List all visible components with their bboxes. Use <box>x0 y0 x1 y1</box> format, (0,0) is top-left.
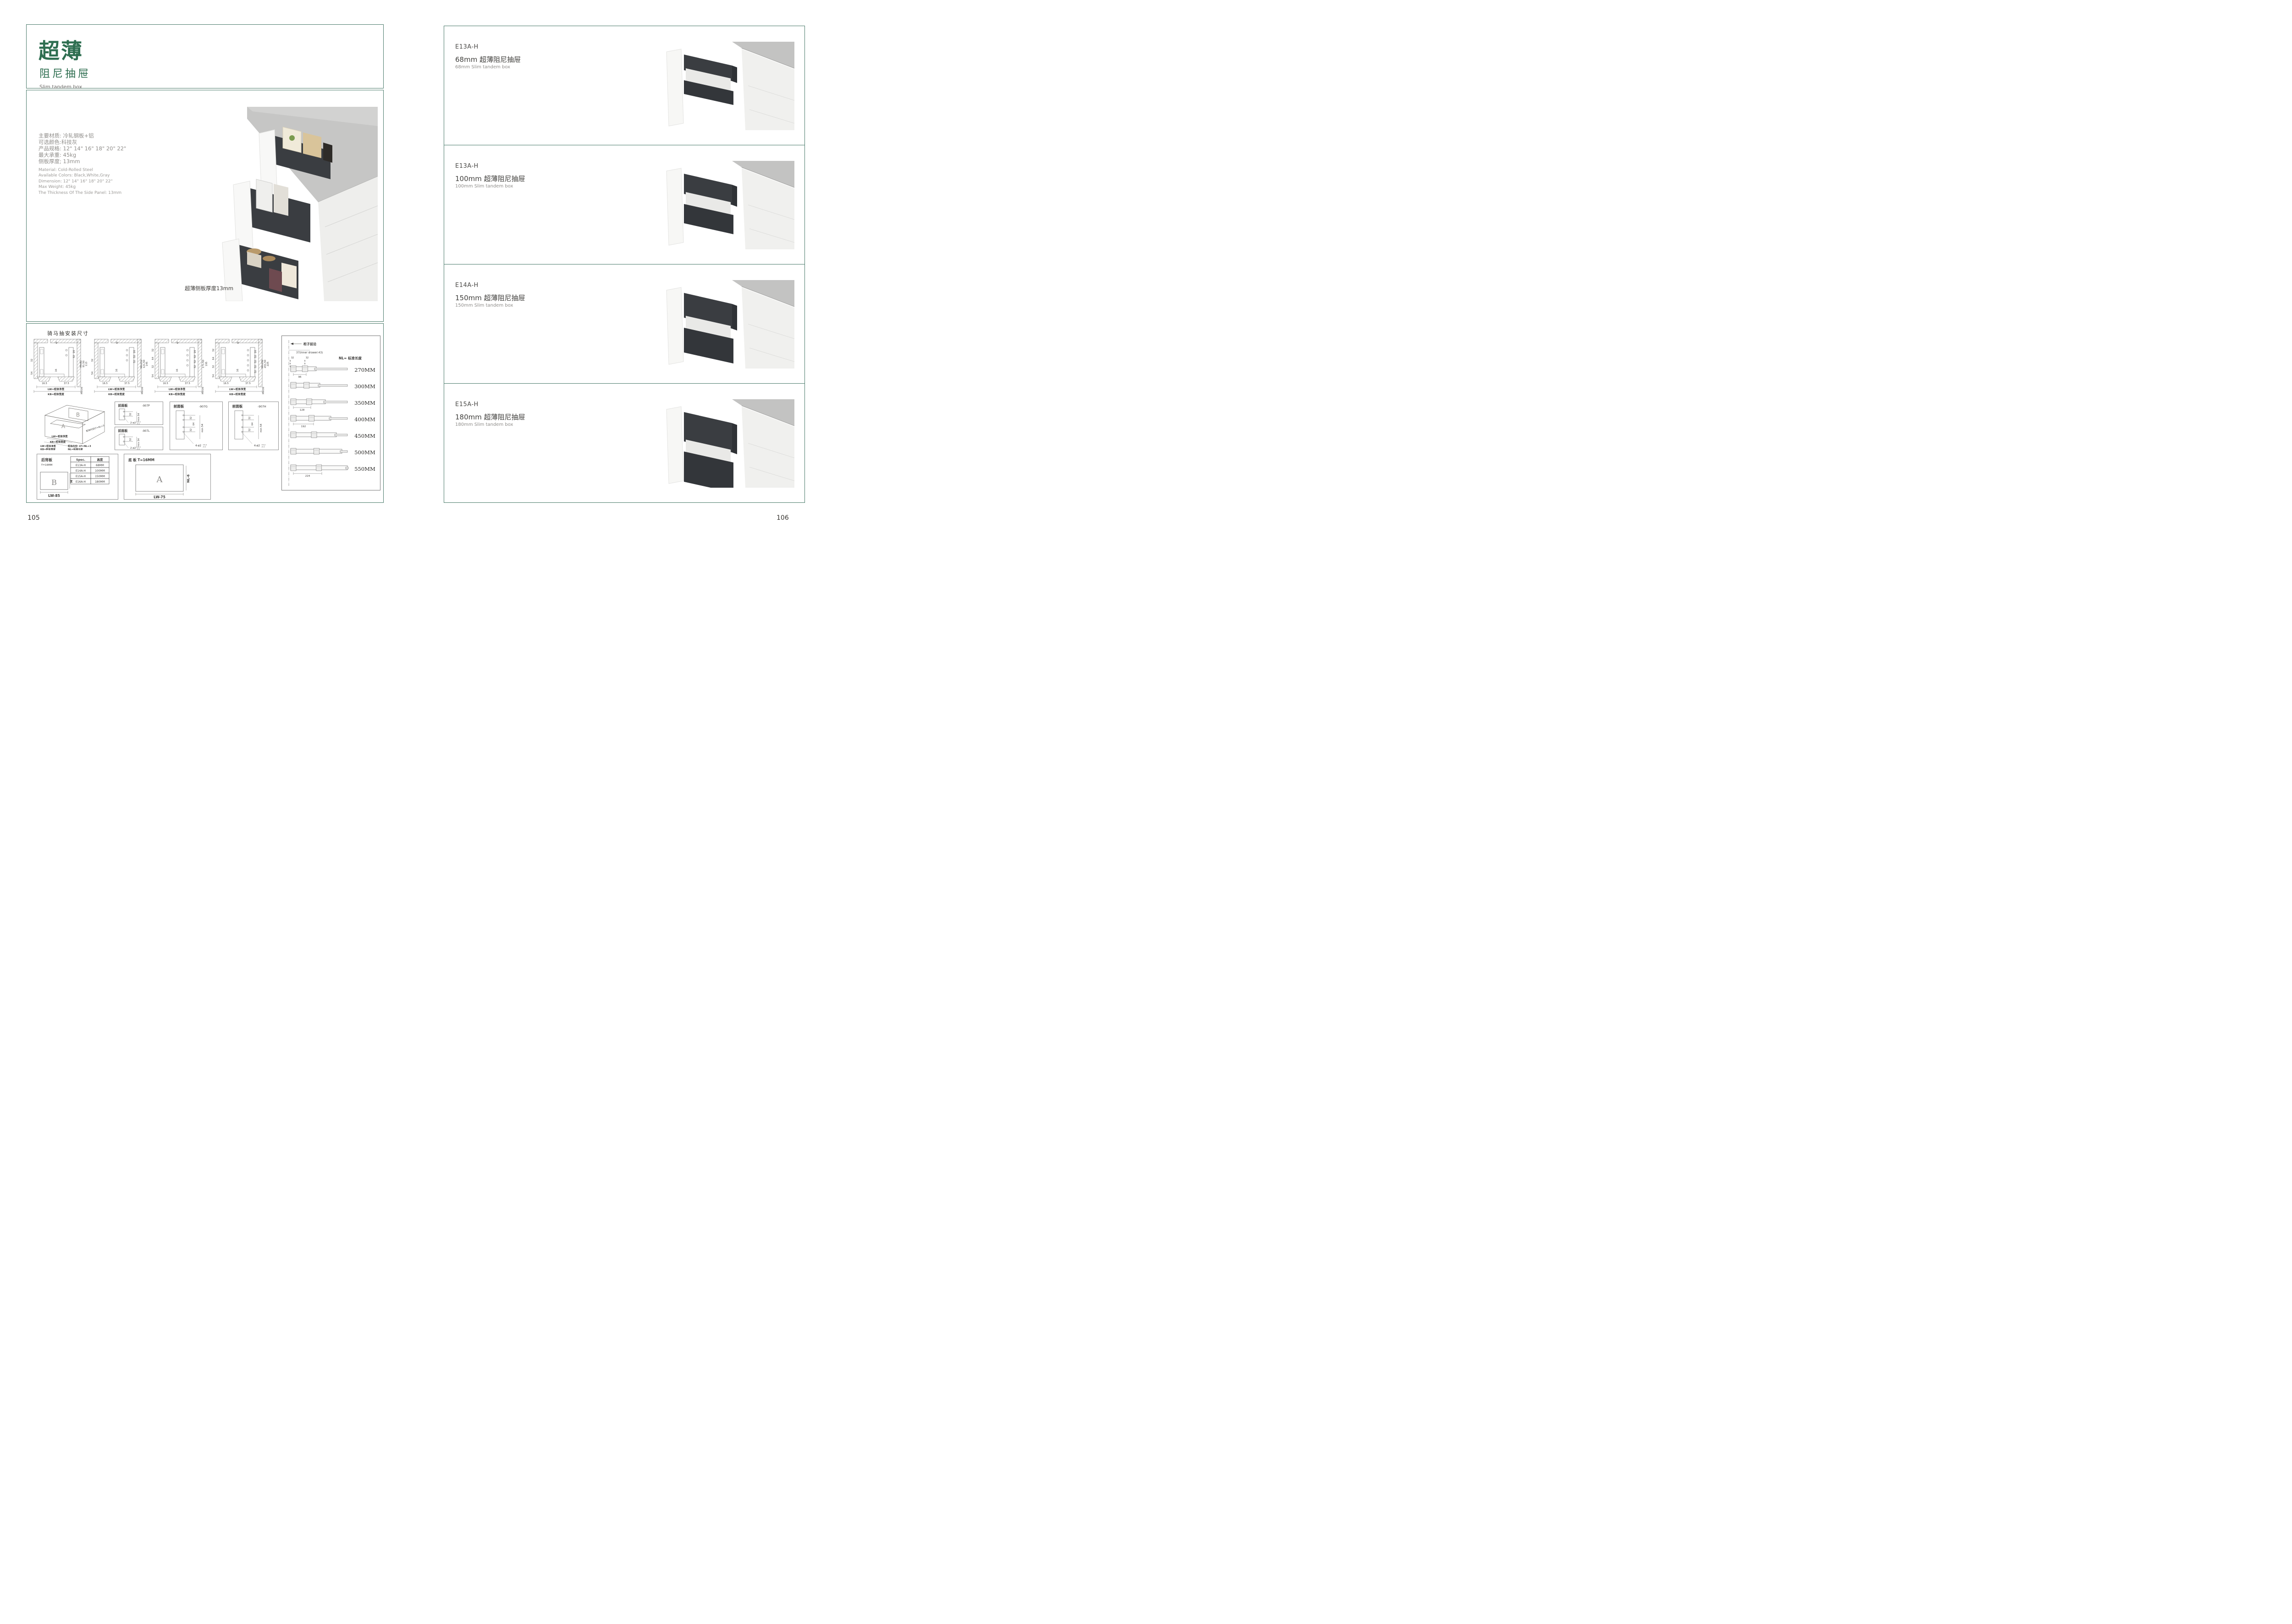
bracket-hole <box>294 466 295 467</box>
dim-label: 32 <box>133 360 136 363</box>
panel-shape <box>119 434 125 445</box>
slide-bracket <box>314 448 319 454</box>
product-title-cn: 68mm 超薄阻尼抽屉 <box>455 55 521 64</box>
dim-label: 32 <box>254 355 257 358</box>
dim-label: 9 <box>116 341 118 345</box>
product-photo-main: 超薄侧板厚度13mm <box>178 107 378 301</box>
drawer-side-dark <box>732 304 737 330</box>
dim-label: 128 <box>300 409 305 412</box>
coffee-bag <box>269 268 282 292</box>
drawer-render-100mm <box>638 161 794 249</box>
dim-label: LW=柜体净宽 <box>229 387 246 391</box>
dim-line <box>183 433 193 444</box>
dim-label: 柜体内空: LT=NL+3 <box>68 444 91 448</box>
dim-label: 32 <box>129 438 132 441</box>
install-diagram-3: 9203232323264325416171.5019516.537.5Min3… <box>151 337 209 397</box>
slide-extension <box>329 418 347 419</box>
dim-label: 柜子前沿 <box>303 342 316 346</box>
page-number-right: 106 <box>777 514 789 522</box>
product-code: E13A-H <box>455 44 479 50</box>
spec-line: Dimension: 12" 14" 16" 18" 20" 22" <box>39 179 121 184</box>
cabinet-wall <box>159 377 171 381</box>
bracket-hole <box>294 450 295 451</box>
bracket-hole <box>293 466 294 467</box>
dim-label: 32 <box>190 417 193 419</box>
iso-top-face <box>45 405 105 423</box>
drawer-side-dark <box>732 185 737 207</box>
slide-bracket <box>291 415 296 421</box>
dim-label: E16A-H <box>76 480 86 484</box>
bracket-hole <box>294 433 295 434</box>
drawer-front-white <box>667 168 683 245</box>
product-title-en: 150mm Slim tandem box <box>455 303 513 308</box>
bracket-hole <box>315 450 316 451</box>
dim-label: 270MM <box>354 367 375 373</box>
dim-label: Min36 <box>202 387 204 394</box>
bracket-hole <box>304 367 305 368</box>
iso-plate-a <box>50 420 85 428</box>
slide-extension <box>324 401 347 403</box>
cabinet-wall <box>94 339 108 343</box>
cabinet-wall <box>232 339 262 343</box>
dim-label: 9 <box>55 341 57 345</box>
spec-line: 最大承重: 45kg <box>39 152 126 158</box>
bracket-hole <box>293 400 294 401</box>
dim-label: 150MM <box>95 475 105 478</box>
dim-label: LW-85 <box>48 494 60 498</box>
dim-label: E13A-H <box>76 464 86 467</box>
bracket-hole <box>312 433 313 434</box>
product-title-en: 100mm Slim tandem box <box>455 184 513 189</box>
bracket-hole <box>292 466 292 467</box>
drawer-render-triple <box>178 107 378 301</box>
drawer-bottom <box>165 374 185 377</box>
dim-label: NL= 标准长度 <box>339 356 362 360</box>
cabinet-wall <box>155 339 169 343</box>
dim-label: 9 <box>290 363 291 365</box>
product-card-100mm: E13A-H 100mm 超薄阻尼抽屉 100mm Slim tandem bo… <box>444 145 805 264</box>
product-code: E13A-H <box>455 163 479 170</box>
spec-line: 主要材质: 冷轧钢板+铝 <box>39 132 126 139</box>
slide-bracket <box>316 465 322 471</box>
dim-label: B <box>51 478 57 487</box>
cabinet-wall <box>118 377 135 381</box>
cabinet-wall <box>239 377 256 381</box>
bracket-hole <box>292 384 292 385</box>
slide-bracket <box>302 366 308 372</box>
bracket-hole <box>308 384 309 385</box>
dim-label: min 54 <box>201 424 204 432</box>
spec-line: Available Colors: Black,White,Gray <box>39 173 121 178</box>
dim-label: 底 板 T=16MM <box>128 457 154 462</box>
bracket-hole <box>294 400 295 401</box>
dim-label: 32 <box>190 429 193 431</box>
dim-label: min 54 <box>138 438 140 446</box>
dim-label: 前面板 <box>174 404 184 408</box>
dim-label: 9 <box>304 360 306 363</box>
dim-label: 32 <box>91 359 94 362</box>
dim-label: 20 <box>254 350 257 353</box>
product-title-cn: 180mm 超薄阻尼抽屉 <box>455 412 525 422</box>
bracket-hole <box>306 367 307 368</box>
dim-label: 300MM <box>354 383 375 390</box>
technical-drawings-section: 骑马抽安装尺寸 92032325416Min8291.5011316.537.5… <box>26 323 384 503</box>
overview-section: 主要材质: 冷轧钢板+铝 可选颜色:科技灰 产品规格: 12" 14" 16" … <box>26 90 384 322</box>
install-diagram-2: 9203232325416Min112121.5014516.537.5Min3… <box>91 337 149 397</box>
food-pack <box>274 184 288 216</box>
spec-list-en: Material: Cold-Rolled Steel Available Co… <box>39 167 121 196</box>
back-panel-diagram: 后背板T=16MMSpec.高度E13A-H68MME14A-H100MME15… <box>37 454 118 500</box>
cabinet-wall <box>34 339 48 343</box>
dim-label: 96 <box>298 376 302 379</box>
dim-label: 195 <box>205 362 208 366</box>
slide-length-chart: 柜子前沿37(Inner drawer:43)3232999999NL= 标准长… <box>281 336 380 490</box>
cabinet-wall <box>179 377 195 381</box>
dim-label: 32 <box>248 429 251 431</box>
spec-line: 产品规格: 12" 14" 16" 18" 20" 22" <box>39 145 126 152</box>
bracket-hole <box>292 450 292 451</box>
product-code: E15A-H <box>455 401 479 408</box>
dim-label: 225 <box>267 362 270 366</box>
cabinet-wall <box>98 377 111 381</box>
drawer-bottom <box>105 374 125 377</box>
food-pack <box>256 179 272 212</box>
cabinet-wall <box>94 343 98 379</box>
cabinet-wall <box>58 377 74 381</box>
photo-caption: 超薄侧板厚度13mm <box>185 285 233 292</box>
cabinet-wall <box>215 343 219 379</box>
spec-list-cn: 主要材质: 冷轧钢板+铝 可选颜色:科技灰 产品规格: 12" 14" 16" … <box>39 132 126 165</box>
spec-line: 可选颜色:科技灰 <box>39 139 126 145</box>
bracket-hole <box>294 384 295 385</box>
dim-label: -907P <box>142 405 150 407</box>
product-card-68mm: E13A-H 68mm 超薄阻尼抽屉 68mm Slim tandem box <box>444 26 805 145</box>
dim-label: 32 <box>291 357 294 359</box>
dim-label: KB=柜体宽度 <box>229 392 246 396</box>
bracket-hole <box>293 367 294 368</box>
dim-label: 20 <box>133 350 136 353</box>
dim-label: 32 <box>194 365 197 369</box>
dim-label: -0.1 <box>261 446 265 448</box>
dim-label: 柜体内空LT=NL+3 <box>86 424 105 433</box>
dim-label: 32 <box>212 365 215 369</box>
dim-label: 高度 <box>97 457 104 462</box>
bracket-hole <box>317 466 318 467</box>
dim-label: 37.5 <box>245 382 251 385</box>
dim-label: 32 <box>73 355 76 358</box>
mount-hole <box>247 359 249 361</box>
dim-label: 32 <box>306 357 309 359</box>
slide-profile-left <box>100 347 105 377</box>
dim-label: A <box>156 475 163 484</box>
drawings-heading: 骑马抽安装尺寸 <box>47 330 89 337</box>
slide-extension <box>340 451 347 452</box>
dim-line <box>242 433 252 444</box>
dim-label: 500MM <box>354 449 375 456</box>
bracket-hole <box>306 384 307 385</box>
jar-lid <box>263 256 275 261</box>
dim-label: 32 <box>212 349 215 352</box>
dim-label: 550MM <box>354 466 375 472</box>
dim-label: 9 <box>290 360 291 363</box>
dim-label: B <box>76 412 80 418</box>
dim-label: Spec. <box>76 458 85 462</box>
dim-label: 16 <box>116 369 118 372</box>
spec-line: The Thickness Of The Side Panel: 13mm <box>39 190 121 196</box>
mount-hole <box>247 349 249 351</box>
dim-label: 前面板 <box>118 403 128 407</box>
dim-label: Min36 <box>141 387 144 394</box>
drawer-render-150mm <box>638 280 794 369</box>
dim-label: 171.50 <box>202 360 205 368</box>
drawer-bottom <box>44 374 64 377</box>
series-subtitle-cn: 阻尼抽屉 <box>39 69 91 79</box>
bracket-hole <box>293 417 294 418</box>
dim-label: 32 <box>31 359 33 362</box>
dim-label: 32 <box>254 360 257 363</box>
mount-hole <box>247 354 249 356</box>
cabinet-iso-diagram: BA柜体内空LT=NL+3LW=柜体净宽KB=柜体宽度LW=柜体净宽KB=柜体宽… <box>37 402 110 450</box>
drawer-render-68mm <box>638 42 794 130</box>
dim-label: 64 <box>152 357 154 360</box>
dim-label: 54 <box>152 374 154 377</box>
dim-label: 68MM <box>96 464 104 467</box>
cabinet-wall <box>34 343 38 379</box>
bracket-hole <box>292 367 292 368</box>
page-number-left: 105 <box>28 514 40 522</box>
dim-label: 32 <box>254 370 257 374</box>
dim-label: 16.5 <box>163 382 168 385</box>
dim-label: 16.5 <box>223 382 229 385</box>
drawer-front-white <box>667 49 683 126</box>
dim-label: E14A-H <box>76 469 86 473</box>
mount-hole <box>126 349 128 351</box>
panel-shape <box>235 411 243 439</box>
popcorn-jar <box>281 263 297 288</box>
dim-label: 32 <box>152 365 154 369</box>
bracket-hole <box>314 433 314 434</box>
dim-label: KB=柜体宽度 <box>169 392 185 396</box>
dim-label: 64 <box>193 423 195 425</box>
dim-label: A <box>61 423 66 429</box>
dim-label: 450MM <box>354 433 375 439</box>
bracket-hole <box>292 400 292 401</box>
dim-label: 224 <box>305 475 310 478</box>
dim-label: 32 <box>248 417 251 419</box>
dim-label: LW=柜体净宽 <box>108 387 125 391</box>
dim-label: 16 <box>55 369 58 372</box>
slide-bracket <box>304 382 309 388</box>
dim-label: 54 <box>31 371 33 374</box>
dim-label: 32 <box>254 365 257 369</box>
dim-label: LW=柜体净宽 <box>51 435 68 438</box>
dim-label: 16 <box>176 369 179 372</box>
dim-label: 32 <box>152 349 154 352</box>
dim-label: 9 <box>237 341 239 345</box>
slide-bracket <box>311 432 317 438</box>
slide-extension <box>335 434 347 436</box>
mount-hole <box>126 354 128 356</box>
bracket-hole <box>293 384 294 385</box>
catalog-spread: 超薄 阻尼抽屉 Slim tandem box 主要材质: 冷轧钢板+铝 可选颜… <box>0 0 830 541</box>
dim-label: 32 <box>129 413 132 416</box>
snack-box-art <box>289 135 295 141</box>
dim-label: 54 <box>212 374 215 377</box>
slide-profile-left <box>39 347 44 377</box>
snack-box <box>323 143 332 163</box>
dim-label: 2-ø2 <box>130 422 136 424</box>
mount-hole <box>187 354 188 356</box>
dim-label: Min36 <box>81 387 83 394</box>
dim-label: 100MM <box>95 469 105 473</box>
dim-label: -907G <box>199 405 208 408</box>
dim-label: 113 <box>85 362 88 366</box>
dim-label: 20 <box>194 350 197 353</box>
install-diagram-4: 920323232323264325416Min192201.5022516.5… <box>212 337 270 397</box>
product-title-cn: 100mm 超薄阻尼抽屉 <box>455 174 525 183</box>
dim-label: 4-ø2 <box>195 445 201 447</box>
bracket-hole <box>305 384 306 385</box>
mount-hole <box>187 364 188 366</box>
dim-label: 37(Inner drawer:43) <box>296 352 323 354</box>
dim-label: LW=柜体净宽 <box>169 387 186 391</box>
slide-bracket <box>291 399 296 405</box>
slide-bracket <box>291 366 296 372</box>
dim-label: -907H <box>258 405 266 408</box>
dim-label: KB=柜体宽度 <box>108 392 125 396</box>
install-diagram-1: 92032325416Min8291.5011316.537.5Min36LW=… <box>30 337 88 397</box>
slide-bracket <box>291 465 296 471</box>
title-section: 超薄 阻尼抽屉 Slim tandem box <box>26 24 384 88</box>
bracket-hole <box>310 400 311 401</box>
cabinet-wall <box>155 343 159 379</box>
front-panel-907H: 前面板-907H326432min 544-ø2+0.2-0.1 <box>228 402 279 450</box>
dim-label: min 54 <box>260 424 263 432</box>
dim-label: E15A-H <box>76 475 86 478</box>
dim-label: 180MM <box>95 480 105 484</box>
cabinet-wall <box>38 377 50 381</box>
bracket-hole <box>307 400 308 401</box>
dim-label: 37.5 <box>64 382 69 385</box>
dim-label: 400MM <box>354 416 375 423</box>
mount-hole <box>247 364 249 366</box>
drawer-front-white <box>667 407 683 484</box>
cabinet-wall <box>215 339 229 343</box>
drawer-front-white <box>667 287 683 364</box>
spec-line: Material: Cold-Rolled Steel <box>39 167 121 173</box>
slide-extension <box>346 467 348 469</box>
dim-label: 16.5 <box>102 382 108 385</box>
bracket-hole <box>316 450 317 451</box>
cabinet-wall <box>198 339 202 387</box>
dim-label: 64 <box>212 357 215 360</box>
drawer-side-dark <box>732 423 737 454</box>
mount-hole <box>126 359 128 361</box>
dim-label: 54 <box>91 371 94 374</box>
panel-shape <box>176 411 184 439</box>
cabinet-wall <box>50 339 81 343</box>
slide-bracket <box>291 382 296 388</box>
dim-label: -0.1 <box>203 446 206 448</box>
slide-extension <box>314 368 347 370</box>
bracket-hole <box>294 417 295 418</box>
product-title-en: 68mm Slim tandem box <box>455 65 510 70</box>
dim-label: 16.5 <box>42 382 47 385</box>
dim-label: H <box>70 480 73 483</box>
mount-hole <box>187 359 188 361</box>
cabinet-wall <box>219 377 232 381</box>
bracket-hole <box>309 400 309 401</box>
dim-label: 前面板 <box>118 429 128 433</box>
dim-label: NL-6 <box>187 474 190 483</box>
dim-label: 后背板 <box>41 457 53 462</box>
dim-label: 16 <box>237 369 239 372</box>
bracket-hole <box>293 433 294 434</box>
cabinet-wall <box>171 339 202 343</box>
mount-hole <box>66 354 67 356</box>
dim-label: 64 <box>251 423 254 425</box>
front-panel-907P-907L: 前面板-907P32min 542-ø2+0.2-0.1前面板-907L32mi… <box>115 402 163 450</box>
dim-label: LW=柜体净宽 <box>48 387 65 391</box>
dim-label: Min36 <box>262 387 265 394</box>
slide-profile-left <box>221 347 226 377</box>
drawer-side-dark <box>732 66 737 83</box>
dim-label: 350MM <box>354 400 375 406</box>
panel-shape <box>119 409 125 420</box>
dim-label: 20 <box>73 350 76 353</box>
dim-label: KB=柜体宽度 <box>48 392 64 396</box>
dim-label: -907L <box>142 430 150 433</box>
bracket-hole <box>303 367 304 368</box>
mount-hole <box>247 369 249 371</box>
series-title-en: Slim tandem box <box>39 84 82 89</box>
bracket-hole <box>313 417 314 418</box>
cabinet-wall <box>111 339 141 343</box>
dim-label: 192 <box>301 425 306 428</box>
slide-bracket <box>309 415 314 421</box>
product-title-cn: 150mm 超薄阻尼抽屉 <box>455 293 525 303</box>
bottom-panel-diagram: 底 板 T=16MMANL-6LW-75 <box>124 454 211 500</box>
bracket-hole <box>292 433 292 434</box>
dim-label: 32 <box>194 355 197 358</box>
mount-hole <box>187 349 188 351</box>
product-title-en: 180mm Slim tandem box <box>455 422 513 427</box>
mount-hole <box>66 349 67 351</box>
dim-label: 32 <box>133 355 136 358</box>
iso-front-face <box>45 415 83 444</box>
dim-label: -0.1 <box>137 423 140 425</box>
bracket-hole <box>315 433 316 434</box>
dim-label: 37.5 <box>185 382 190 385</box>
dim-label: LW-75 <box>154 495 165 499</box>
bracket-hole <box>294 367 295 368</box>
bracket-hole <box>318 450 319 451</box>
slide-extension <box>318 385 347 386</box>
dim-label: min 54 <box>138 413 140 421</box>
dim-label: 9 <box>304 363 306 365</box>
series-title-cn: 超薄 <box>39 40 83 61</box>
bracket-hole <box>292 417 292 418</box>
product-card-180mm: E15A-H 180mm 超薄阻尼抽屉 180mm Slim tandem bo… <box>444 383 805 503</box>
dim-label: T=16MM <box>41 464 53 467</box>
bracket-hole <box>319 466 320 467</box>
slide-bracket <box>291 448 296 454</box>
spec-line: 侧板厚度; 13mm <box>39 158 126 165</box>
dim-label: 前面板 <box>232 404 243 408</box>
drawer-bottom <box>226 374 246 377</box>
dim-label: -0.1 <box>137 448 140 450</box>
product-card-150mm: E14A-H 150mm 超薄阻尼抽屉 150mm Slim tandem bo… <box>444 264 805 384</box>
